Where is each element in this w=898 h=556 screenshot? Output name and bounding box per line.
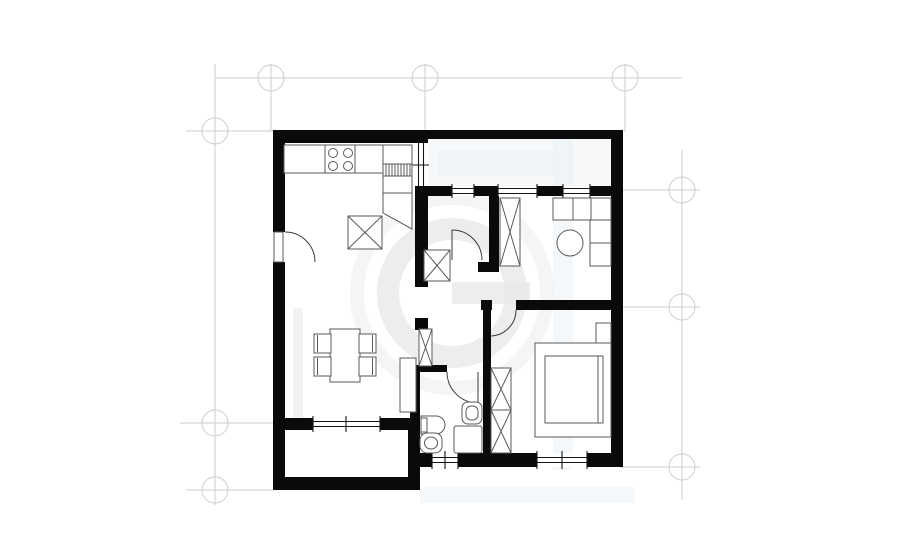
washing-machine [454, 426, 482, 453]
bedroom [491, 323, 611, 453]
bed-mattress [545, 356, 603, 423]
wall-bedroom-top-east [516, 300, 611, 310]
bathroom [420, 402, 482, 453]
toilet [420, 433, 442, 453]
window-living-a [452, 186, 474, 196]
tint-band-balcony [437, 150, 555, 176]
wall-exterior-right [611, 137, 623, 467]
window-living-c [563, 186, 590, 196]
wall-south-seg [410, 453, 432, 467]
wall-stub-hall [415, 318, 428, 330]
wall-bathroom-bedroom [483, 310, 491, 455]
wall-balcony-top [425, 130, 623, 139]
wall-south-seg [458, 453, 537, 467]
dining-table [330, 329, 360, 382]
wall-exterior-top-kitchen [273, 130, 428, 143]
sideboard [400, 358, 416, 412]
dining-chair [314, 357, 331, 376]
floor-plan-canvas [0, 0, 898, 556]
floor-plan-image [0, 0, 898, 556]
wall-exterior-left-lower [273, 262, 285, 490]
kitchen-counter [284, 145, 383, 173]
nightstand [596, 323, 611, 343]
entrance-door-leaf [274, 232, 283, 262]
entrance-door-swing [285, 232, 315, 262]
wall-window-band-seg [425, 186, 452, 196]
wall-dining-south-seg [380, 418, 417, 430]
dining-chair [314, 334, 331, 353]
tint-band-bottom [420, 487, 635, 503]
dining-chair [359, 334, 376, 353]
tint-band-dining [293, 308, 303, 420]
wall-window-band-seg [474, 186, 498, 196]
wall-window-band-seg [590, 186, 611, 196]
wall-window-band-seg [537, 186, 563, 196]
wall-bedroom-top-west [481, 300, 492, 310]
window-living-b [498, 186, 537, 196]
kitchen [284, 145, 412, 249]
bidet [462, 402, 482, 424]
dining-chair [359, 357, 376, 376]
wall-south-seg [587, 453, 623, 467]
wall-living-stub [478, 262, 499, 272]
wall-living-left [489, 196, 499, 262]
sofa-back [553, 198, 611, 220]
wall-balcony-bottom [273, 477, 420, 490]
wall-exterior-left-upper [273, 130, 285, 232]
coffee-table [557, 230, 583, 256]
wall-dining-south-seg [285, 418, 313, 430]
